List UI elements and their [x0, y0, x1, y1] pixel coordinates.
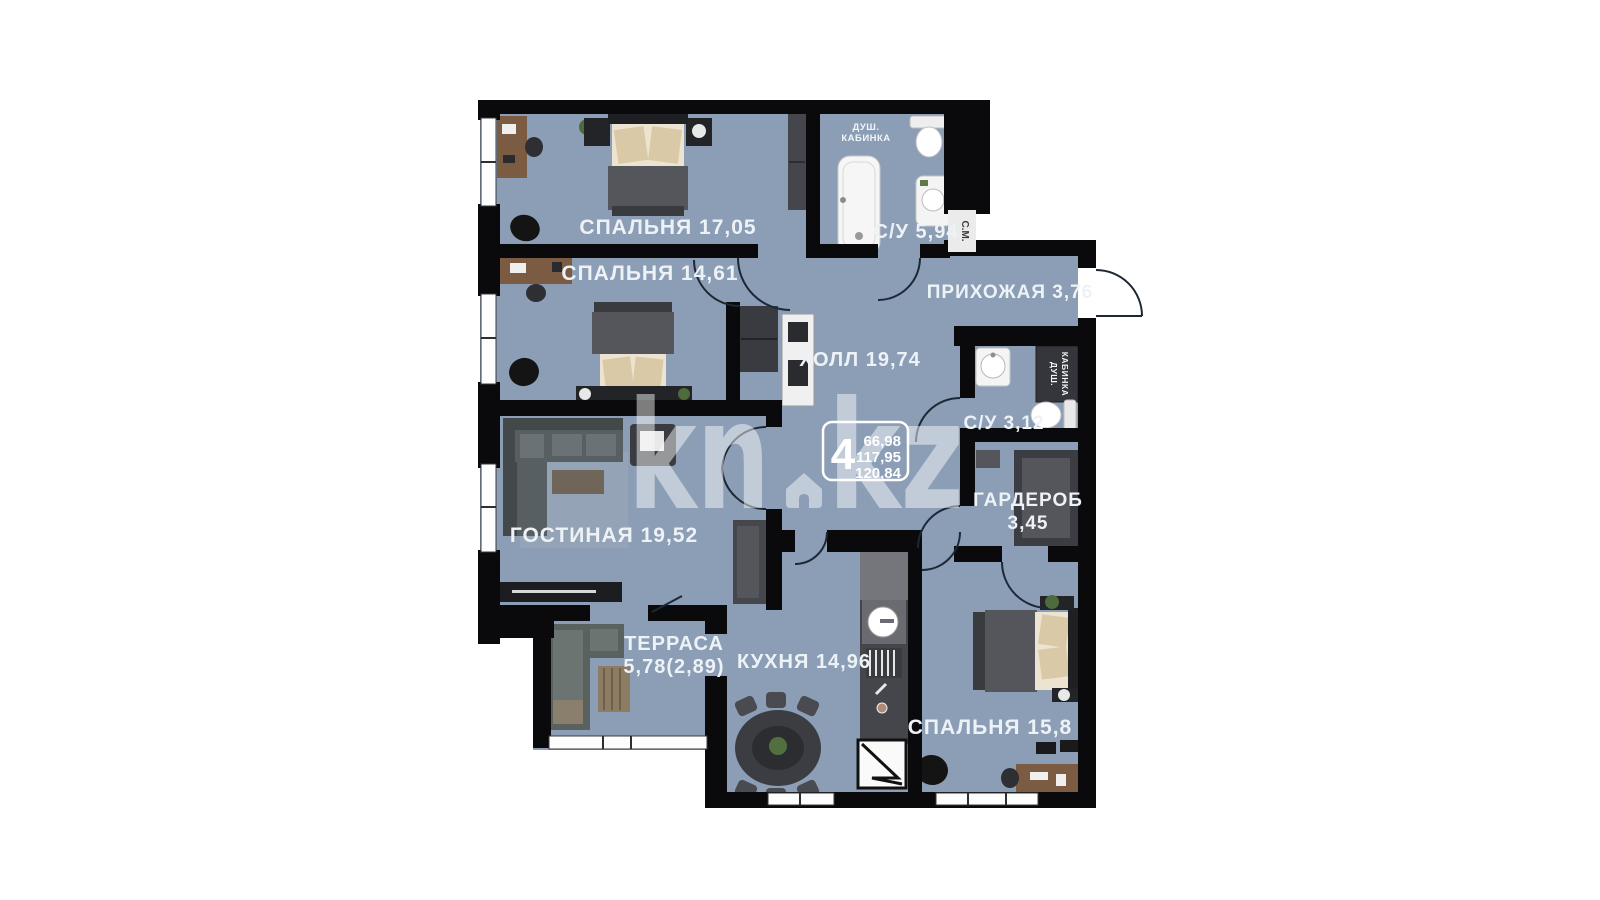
kitchen-counter-icon [860, 552, 908, 744]
terrace-label-line2: 5,78(2,89) [623, 656, 724, 678]
coffee-table-icon [552, 470, 604, 494]
shower-cabin-2-label-line2: КАБИНКА [1060, 352, 1070, 397]
chair-icon [1001, 768, 1019, 788]
watermark-text-left: kn [628, 370, 770, 544]
kitchen-label: КУХНЯ 14,96 [737, 651, 871, 673]
bathroom-2-label: С/У 3,12 [963, 413, 1044, 434]
double-bed-icon [608, 112, 688, 216]
window-icon [936, 793, 1038, 805]
chair-icon [525, 137, 543, 157]
window-icon [549, 736, 707, 749]
stove-icon [866, 648, 902, 678]
floor-plan: СПАЛЬНЯ 17,05 СПАЛЬНЯ 14,61 С/У 5,94 ПРИ… [0, 0, 1600, 900]
tv-stand-icon [500, 582, 622, 602]
double-bed-icon [973, 608, 1078, 694]
hall-label: ХОЛЛ 19,74 [799, 349, 921, 371]
refrigerator-icon [858, 740, 906, 788]
bedroom-2-label: СПАЛЬНЯ 14,61 [561, 262, 738, 285]
hallway-label: ПРИХОЖАЯ 3,76 [927, 282, 1094, 303]
plant-icon [1045, 595, 1059, 609]
watermark-text-right: kz [828, 370, 964, 544]
sink-icon [976, 348, 1010, 386]
wardrobe-label-line2: 3,45 [1008, 513, 1049, 534]
shower-cabin-label-line2: КАБИНКА [841, 133, 890, 144]
entrance-door-arc-icon [1096, 270, 1142, 316]
bedroom-1-label: СПАЛЬНЯ 17,05 [579, 216, 756, 239]
chair-icon [526, 284, 546, 302]
wardrobe-label-line1: ГАРДЕРОБ [973, 490, 1083, 511]
shower-cabin-2-label-line1: ДУШ. [1049, 362, 1059, 386]
nightstand-icon [584, 118, 610, 146]
terrace-label-line1: ТЕРРАСА [624, 633, 724, 655]
bathroom-1-label: С/У 5,94 [874, 221, 959, 243]
shower-cabin-label-line1: ДУШ. [853, 122, 880, 133]
washing-machine-label: С.М. [959, 220, 970, 241]
plant-icon [769, 737, 787, 755]
bedroom-3-label: СПАЛЬНЯ 15,8 [908, 716, 1072, 739]
floor-plan-drawing: СПАЛЬНЯ 17,05 СПАЛЬНЯ 14,61 С/У 5,94 ПРИ… [0, 0, 1600, 900]
